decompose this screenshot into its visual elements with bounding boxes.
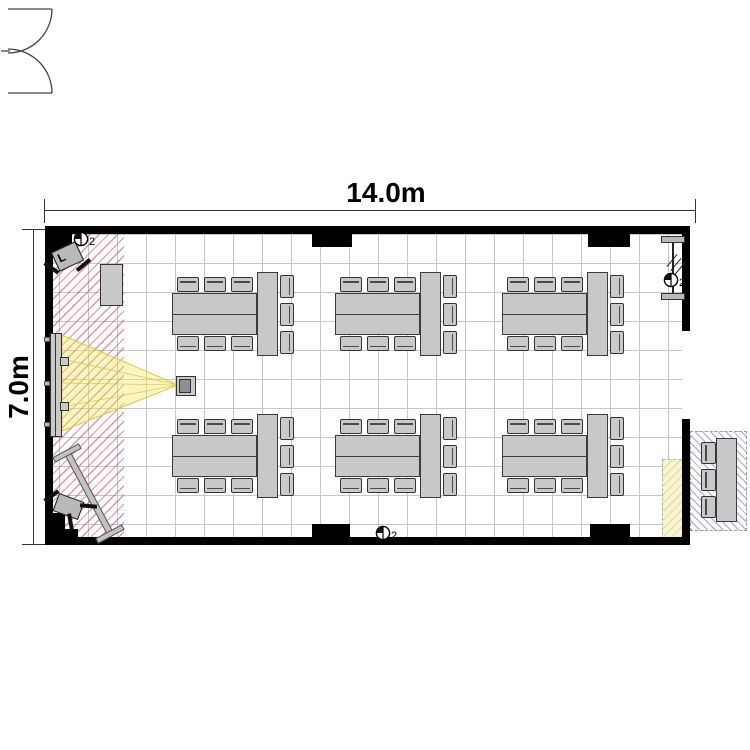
wall-mount-tick-1: [44, 337, 50, 342]
dimension-width-line: [45, 210, 696, 211]
table-group-5-chair-bottom-2: [367, 478, 389, 493]
table-group-1-chair-bottom-1: [177, 336, 199, 351]
table-group-5-chair-bottom-3: [394, 478, 416, 493]
ac-unit-bar-bottom: [661, 293, 685, 300]
column-top-center: [312, 226, 352, 247]
table-group-5-main-table: [335, 435, 420, 477]
ceiling-fixture-symbol-top-right-count: 2: [679, 277, 685, 289]
table-group-3-chair-right-2: [610, 303, 624, 326]
table-group-2-chair-top-1: [340, 277, 362, 292]
dimension-height-line: [33, 230, 34, 545]
table-group-2-table-divider: [336, 314, 419, 315]
table-group-3-chair-top-3: [561, 277, 583, 292]
double-door: [0, 0, 64, 102]
table-group-4-chair-top-3: [231, 419, 253, 434]
column-bottom-center: [312, 524, 350, 545]
table-group-3-chair-right-3: [610, 331, 624, 354]
table-group-3-chair-bottom-2: [534, 336, 556, 351]
table-group-5-chair-right-2: [443, 445, 457, 468]
screen-bracket-1: [60, 357, 69, 366]
table-group-6-chair-bottom-3: [561, 478, 583, 493]
table-group-4-chair-right-1: [280, 417, 294, 440]
table-group-5-chair-right-3: [443, 473, 457, 496]
table-group-2-chair-bottom-2: [367, 336, 389, 351]
outside-chair-2: [701, 469, 716, 491]
table-group-2-chair-right-1: [443, 275, 457, 298]
table-group-6-chair-top-3: [561, 419, 583, 434]
dimension-width-tick-1: [695, 199, 696, 223]
table-group-3-chair-bottom-1: [507, 336, 529, 351]
screen-bracket-2: [60, 402, 69, 411]
table-group-6-chair-right-2: [610, 445, 624, 468]
ac-unit-bar-top: [661, 236, 685, 243]
ceiling-fixture-symbol-top-left: 2: [73, 231, 103, 249]
table-group-5-chair-bottom-1: [340, 478, 362, 493]
column-bottom-right: [590, 524, 630, 545]
table-group-5-end-table: [420, 414, 441, 498]
table-group-6-end-table: [587, 414, 608, 498]
projector: [176, 376, 196, 396]
table-group-4-chair-bottom-2: [204, 478, 226, 493]
speaker-left-label: L: [55, 250, 68, 266]
table-group-1-end-table: [257, 272, 278, 356]
table-group-2-chair-right-3: [443, 331, 457, 354]
table-group-6-chair-bottom-1: [507, 478, 529, 493]
table-group-4-chair-top-1: [177, 419, 199, 434]
floor-plan: 14.0m 7.0m L 2 2 2: [0, 0, 750, 750]
wall-mount-tick-2: [44, 381, 50, 386]
table-group-6-chair-right-1: [610, 417, 624, 440]
table-group-4-chair-right-3: [280, 473, 294, 496]
dimension-width-tick-0: [44, 199, 45, 223]
ceiling-fixture-symbol-top-left-count: 2: [89, 236, 95, 248]
table-group-1-chair-bottom-2: [204, 336, 226, 351]
column-bottom-left-b: [45, 529, 78, 545]
table-group-4-chair-top-2: [204, 419, 226, 434]
table-group-6-table-divider: [503, 456, 586, 457]
table-group-3-chair-top-2: [534, 277, 556, 292]
table-group-6-chair-top-1: [507, 419, 529, 434]
table-group-5-chair-right-1: [443, 417, 457, 440]
dimension-height-tick-0: [22, 229, 46, 230]
table-group-3-chair-bottom-3: [561, 336, 583, 351]
table-group-4-chair-bottom-3: [231, 478, 253, 493]
table-group-2-chair-right-2: [443, 303, 457, 326]
outside-chair-3: [701, 496, 716, 518]
wall-right-lower: [682, 419, 690, 545]
table-group-4-chair-bottom-1: [177, 478, 199, 493]
table-group-2-chair-top-3: [394, 277, 416, 292]
table-group-1-chair-right-2: [280, 303, 294, 326]
outside-table: [716, 438, 737, 522]
projector-lens: [179, 379, 191, 393]
table-group-1-main-table: [172, 293, 257, 335]
screen-divider: [55, 334, 56, 436]
table-group-1-table-divider: [173, 314, 256, 315]
table-group-3-table-divider: [503, 314, 586, 315]
dimension-width-label: 14.0m: [346, 177, 425, 209]
table-group-6-main-table: [502, 435, 587, 477]
table-group-2-chair-bottom-1: [340, 336, 362, 351]
outside-chair-1: [701, 442, 716, 464]
table-group-2-chair-top-2: [367, 277, 389, 292]
table-group-1-chair-right-3: [280, 331, 294, 354]
table-group-2-end-table: [420, 272, 441, 356]
table-group-4-table-divider: [173, 456, 256, 457]
ceiling-fixture-symbol-bottom-center-count: 2: [391, 530, 397, 542]
dimension-height-label: 7.0m: [3, 355, 35, 419]
ceiling-fixture-symbol-bottom-center: 2: [375, 525, 405, 543]
table-group-1-chair-bottom-3: [231, 336, 253, 351]
ceiling-fixture-symbol-top-right: 2: [663, 272, 693, 290]
wall-mount-tick-3: [44, 422, 50, 427]
table-group-3-chair-right-1: [610, 275, 624, 298]
table-group-5-chair-top-3: [394, 419, 416, 434]
table-group-1-chair-top-1: [177, 277, 199, 292]
plan-layer: L 2 2 2: [0, 0, 750, 102]
table-group-3-end-table: [587, 272, 608, 356]
cabinet: [100, 264, 123, 306]
projection-screen: [50, 333, 62, 437]
table-group-3-main-table: [502, 293, 587, 335]
table-group-6-chair-top-2: [534, 419, 556, 434]
table-group-4-chair-right-2: [280, 445, 294, 468]
table-group-1-chair-right-1: [280, 275, 294, 298]
table-group-5-chair-top-2: [367, 419, 389, 434]
table-group-5-chair-top-1: [340, 419, 362, 434]
table-group-1-chair-top-3: [231, 277, 253, 292]
table-group-6-chair-right-3: [610, 473, 624, 496]
table-group-2-chair-bottom-3: [394, 336, 416, 351]
table-group-6-chair-bottom-2: [534, 478, 556, 493]
table-group-1-chair-top-2: [204, 277, 226, 292]
dimension-height-tick-1: [22, 544, 46, 545]
column-top-right: [588, 226, 630, 247]
table-group-4-end-table: [257, 414, 278, 498]
table-group-4-main-table: [172, 435, 257, 477]
table-group-3-chair-top-1: [507, 277, 529, 292]
table-group-5-table-divider: [336, 456, 419, 457]
table-group-2-main-table: [335, 293, 420, 335]
